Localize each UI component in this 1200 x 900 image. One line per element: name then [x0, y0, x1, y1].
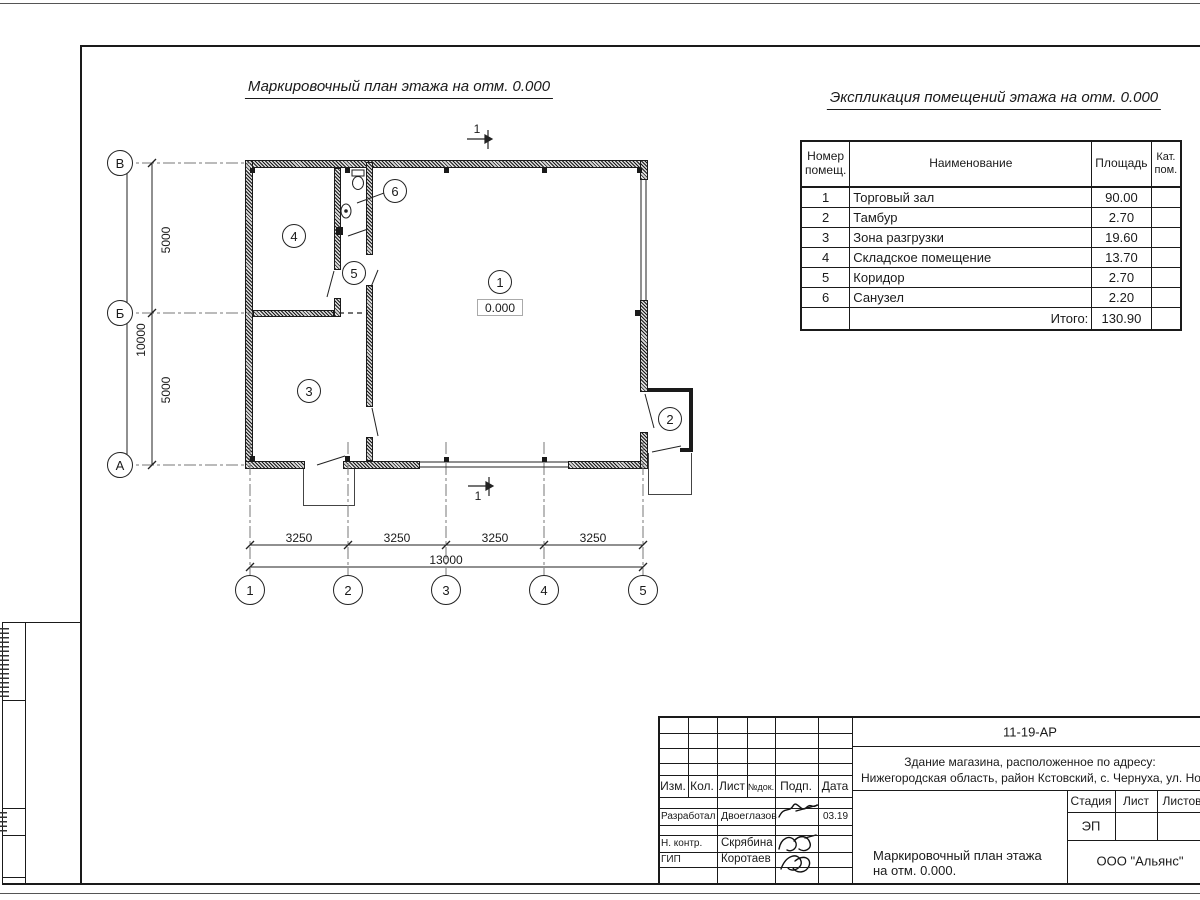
room-label: 2: [666, 412, 673, 427]
room-num: 2: [801, 208, 850, 228]
room-bubble-6: 6: [383, 179, 407, 203]
stamp-line: [852, 746, 1200, 747]
table-row: 2 Тамбур 2.70: [801, 208, 1181, 228]
stamp-line: [1115, 790, 1116, 840]
side-stamp-line: [2, 622, 80, 623]
room-name: Зона разгрузки: [850, 228, 1092, 248]
stamp-line: [658, 867, 852, 868]
side-stamp-line: [2, 877, 25, 878]
axis-col-label: 4: [540, 583, 547, 598]
table-total-row: Итого: 130.90: [801, 308, 1181, 331]
stamp-sheets-label: Листов: [1163, 794, 1200, 808]
room-area: 2.20: [1092, 288, 1151, 308]
dimension-lines: [127, 163, 643, 567]
side-stamp-line: [2, 835, 25, 836]
signature-strokes: [779, 804, 818, 872]
vestibule-wall-top: [648, 388, 693, 392]
room-num: 1: [801, 187, 850, 208]
col-header-name: Наименование: [850, 141, 1092, 187]
room-area: 2.70: [1092, 268, 1151, 288]
stamp-company: ООО "Альянс": [1097, 854, 1184, 869]
stamp-col-data: Дата: [822, 779, 849, 793]
room-cat: [1151, 187, 1181, 208]
room-label: 4: [290, 229, 297, 244]
stamp-line: [688, 716, 689, 797]
stamp-line: [1157, 790, 1158, 840]
stamp-line: [818, 716, 819, 883]
axis-row-label: Б: [116, 306, 125, 321]
room-name: Санузел: [850, 288, 1092, 308]
dim-3250-3: 3250: [482, 531, 509, 545]
room-num: 6: [801, 288, 850, 308]
room-name: Тамбур: [850, 208, 1092, 228]
stamp-line: [658, 825, 852, 826]
stamp-stage-label: Стадия: [1071, 794, 1112, 808]
explication-table: Номер помещ. Наименование Площадь Кат. п…: [800, 140, 1182, 331]
table-row: 6 Санузел 2.20: [801, 288, 1181, 308]
wall-int-c1: [366, 162, 373, 255]
table-row: 3 Зона разгрузки 19.60: [801, 228, 1181, 248]
dim-13000: 13000: [429, 553, 462, 567]
wall-int-a-stub: [334, 298, 341, 317]
axis-row-label: А: [116, 458, 125, 473]
stamp-line: [717, 716, 718, 883]
room-cat: [1151, 268, 1181, 288]
wall-int-b: [253, 310, 334, 317]
stamp-line: [852, 790, 1200, 791]
room-cat: [1151, 228, 1181, 248]
toilet-icon: [352, 170, 364, 190]
stamp-doc-number: 11-19-АР: [1003, 725, 1057, 740]
window-lines: [420, 180, 646, 467]
wall-bottom-3: [568, 461, 648, 469]
dim-10000: 10000: [134, 323, 148, 356]
stamp-role-gip: ГИП: [661, 854, 681, 865]
stamp-line: [1067, 840, 1200, 841]
vestibule-wall-return: [680, 448, 693, 452]
side-stamp-clipped-text: [0, 812, 7, 834]
room-name: Складское помещение: [850, 248, 1092, 268]
entrance-porch-left: [303, 469, 355, 506]
room-cat: [1151, 208, 1181, 228]
drawing-sheet: Маркировочный план этажа на отм. 0.000 Э…: [0, 0, 1200, 900]
stamp-line: [658, 797, 852, 798]
vestibule-wall-right: [689, 392, 693, 452]
axis-row-bubble-v: В: [107, 150, 133, 176]
stamp-line: [775, 716, 776, 883]
room-area: 90.00: [1092, 187, 1151, 208]
stamp-col-list: Лист: [719, 779, 745, 793]
axis-row-bubble-b: Б: [107, 300, 133, 326]
stamp-col-doc: №док.: [748, 782, 774, 792]
dim-3250-4: 3250: [580, 531, 607, 545]
axis-col-bubble-2: 2: [333, 575, 363, 605]
room-label: 3: [305, 384, 312, 399]
wall-bottom-2: [343, 461, 420, 469]
stamp-line: [658, 835, 852, 836]
room-name: Коридор: [850, 268, 1092, 288]
entrance-porch-right: [648, 453, 692, 495]
stamp-col-podp: Подп.: [780, 779, 812, 793]
room-num: 3: [801, 228, 850, 248]
axis-col-label: 3: [442, 583, 449, 598]
wall-right-1: [640, 160, 648, 180]
stamp-line: [1067, 790, 1068, 883]
stamp-sheet-label: Лист: [1123, 794, 1149, 808]
total-value: 130.90: [1092, 308, 1151, 331]
section-label-bottom: 1: [475, 489, 482, 503]
axis-row-label: В: [116, 156, 125, 171]
col-header-num: Номер помещ.: [801, 141, 850, 187]
wall-int-a: [334, 168, 341, 270]
room-label: 6: [391, 184, 398, 199]
section-label-top: 1: [474, 122, 481, 136]
axis-row-bubble-a: А: [107, 452, 133, 478]
stamp-project-line1: Здание магазина, расположенное по адресу…: [904, 755, 1155, 769]
room-area: 13.70: [1092, 248, 1151, 268]
axis-lines: [121, 163, 643, 575]
table-row: 5 Коридор 2.70: [801, 268, 1181, 288]
wall-int-c3: [366, 437, 373, 461]
table-row: 4 Складское помещение 13.70: [801, 248, 1181, 268]
page-bottom-edge: [0, 893, 1200, 894]
page-top-edge: [0, 3, 1200, 4]
room-num: 4: [801, 248, 850, 268]
room-bubble-4: 4: [282, 224, 306, 248]
stamp-line: [852, 716, 853, 883]
room-cat: [1151, 248, 1181, 268]
total-label: Итого:: [850, 308, 1092, 331]
stamp-col-izm: Изм.: [660, 779, 686, 793]
room-bubble-2: 2: [658, 407, 682, 431]
axis-col-bubble-4: 4: [529, 575, 559, 605]
room-bubble-1: 1: [488, 270, 512, 294]
wall-right-3: [640, 432, 648, 469]
axis-col-bubble-3: 3: [431, 575, 461, 605]
room-area: 19.60: [1092, 228, 1151, 248]
stamp-stage-value: ЭП: [1082, 819, 1101, 834]
stamp-col-kol: Кол.: [690, 779, 714, 793]
stamp-role-developed: Разработал: [661, 811, 715, 822]
sink-icon: [341, 204, 351, 218]
side-stamp-line: [2, 808, 25, 809]
dim-5000-lower: 5000: [159, 377, 173, 404]
stamp-name-developed: Двоеглазов: [721, 810, 777, 822]
axis-col-label: 2: [344, 583, 351, 598]
room-name: Торговый зал: [850, 187, 1092, 208]
side-stamp-line: [25, 622, 26, 883]
room-bubble-5: 5: [342, 261, 366, 285]
room-num: 5: [801, 268, 850, 288]
room-cat: [1151, 288, 1181, 308]
stamp-line: [658, 716, 1200, 718]
col-header-cat: Кат. пом.: [1151, 141, 1181, 187]
axis-col-bubble-5: 5: [628, 575, 658, 605]
side-stamp-clipped-text: [0, 628, 9, 698]
axis-col-bubble-1: 1: [235, 575, 265, 605]
wall-top: [245, 160, 648, 168]
axis-col-label: 5: [639, 583, 646, 598]
level-mark: 0.000: [477, 299, 523, 316]
room-label: 1: [496, 275, 503, 290]
plan-title: Маркировочный план этажа на отм. 0.000: [245, 78, 553, 99]
stamp-role-ncontrol: Н. контр.: [661, 838, 702, 849]
axis-col-label: 1: [246, 583, 253, 598]
stamp-date-developed: 03.19: [823, 811, 848, 822]
frame-top: [80, 45, 1200, 47]
room-label: 5: [350, 266, 357, 281]
stamp-line: [658, 716, 660, 883]
frame-left: [80, 45, 82, 884]
dim-3250-1: 3250: [286, 531, 313, 545]
dim-3250-2: 3250: [384, 531, 411, 545]
side-stamp-line: [2, 700, 25, 701]
stamp-line: [1067, 812, 1200, 813]
stamp-name-ncontrol: Скрябина: [721, 837, 773, 849]
wall-right-2: [640, 300, 648, 392]
stamp-line: [658, 808, 852, 809]
room-area: 2.70: [1092, 208, 1151, 228]
wall-left: [245, 160, 253, 469]
col-header-area: Площадь: [1092, 141, 1151, 187]
stamp-project-line2: Нижегородская область, район Кстовский, …: [861, 771, 1200, 785]
wall-int-c2: [366, 285, 373, 407]
stamp-name-gip: Коротаев: [721, 853, 771, 865]
stamp-sheet-title-line1: Маркировочный план этажа: [873, 848, 1042, 863]
dim-5000-upper: 5000: [159, 227, 173, 254]
stamp-sheet-title-line2: на отм. 0.000.: [873, 863, 956, 878]
table-row: 1 Торговый зал 90.00: [801, 187, 1181, 208]
room-bubble-3: 3: [297, 379, 321, 403]
explication-title: Экспликация помещений этажа на отм. 0.00…: [827, 89, 1161, 110]
table-header-row: Номер помещ. Наименование Площадь Кат. п…: [801, 141, 1181, 187]
frame-bottom: [2, 883, 1200, 885]
dimension-ticks: [123, 159, 647, 571]
wall-bottom-1: [245, 461, 305, 469]
